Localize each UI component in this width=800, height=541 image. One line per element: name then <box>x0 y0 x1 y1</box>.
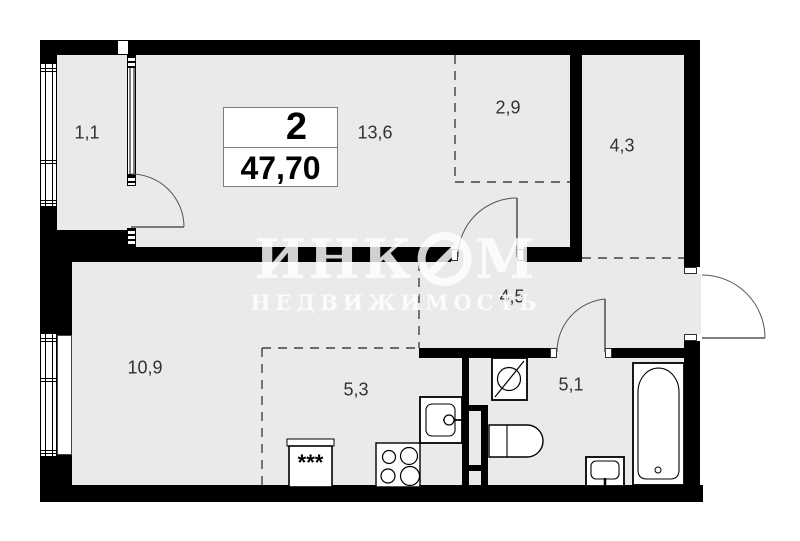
door-arc <box>557 299 605 352</box>
door-arc <box>458 198 517 257</box>
label-living-kitchen-area: 13,6 <box>357 123 392 144</box>
kitchen-sink <box>420 397 463 443</box>
door-arc <box>702 275 765 338</box>
label-wardrobe-area: 2,9 <box>495 98 520 119</box>
label-kitchen-zone-area: 5,3 <box>343 380 368 401</box>
label-bathroom-area: 5,1 <box>558 375 583 396</box>
door-balcony <box>131 174 184 227</box>
fridge-stars-icon: *** <box>298 450 324 475</box>
plan-overlay: *** <box>0 0 800 541</box>
rooms-count: 2 <box>224 108 337 148</box>
bathtub <box>633 363 684 485</box>
doors <box>131 174 765 352</box>
faucet-knob <box>444 415 454 425</box>
label-room-area: 4,3 <box>609 136 634 157</box>
door-entry <box>702 275 765 338</box>
door-bathroom <box>557 299 605 352</box>
toilet <box>489 425 543 457</box>
label-hallway-area: 4,5 <box>499 287 524 308</box>
door-arc <box>131 174 184 227</box>
bathroom-sink <box>586 457 624 494</box>
fridge: *** <box>287 439 334 487</box>
total-area: 47,70 <box>224 148 337 187</box>
floor-plan: *** <box>0 0 800 541</box>
washing-machine <box>492 358 527 400</box>
label-living-zone-area: 10,9 <box>127 358 162 379</box>
stove <box>376 443 420 487</box>
door-living-hall <box>458 198 517 257</box>
apartment-info-box: 2 47,70 <box>223 107 338 187</box>
label-balcony-area: 1,1 <box>74 123 99 144</box>
